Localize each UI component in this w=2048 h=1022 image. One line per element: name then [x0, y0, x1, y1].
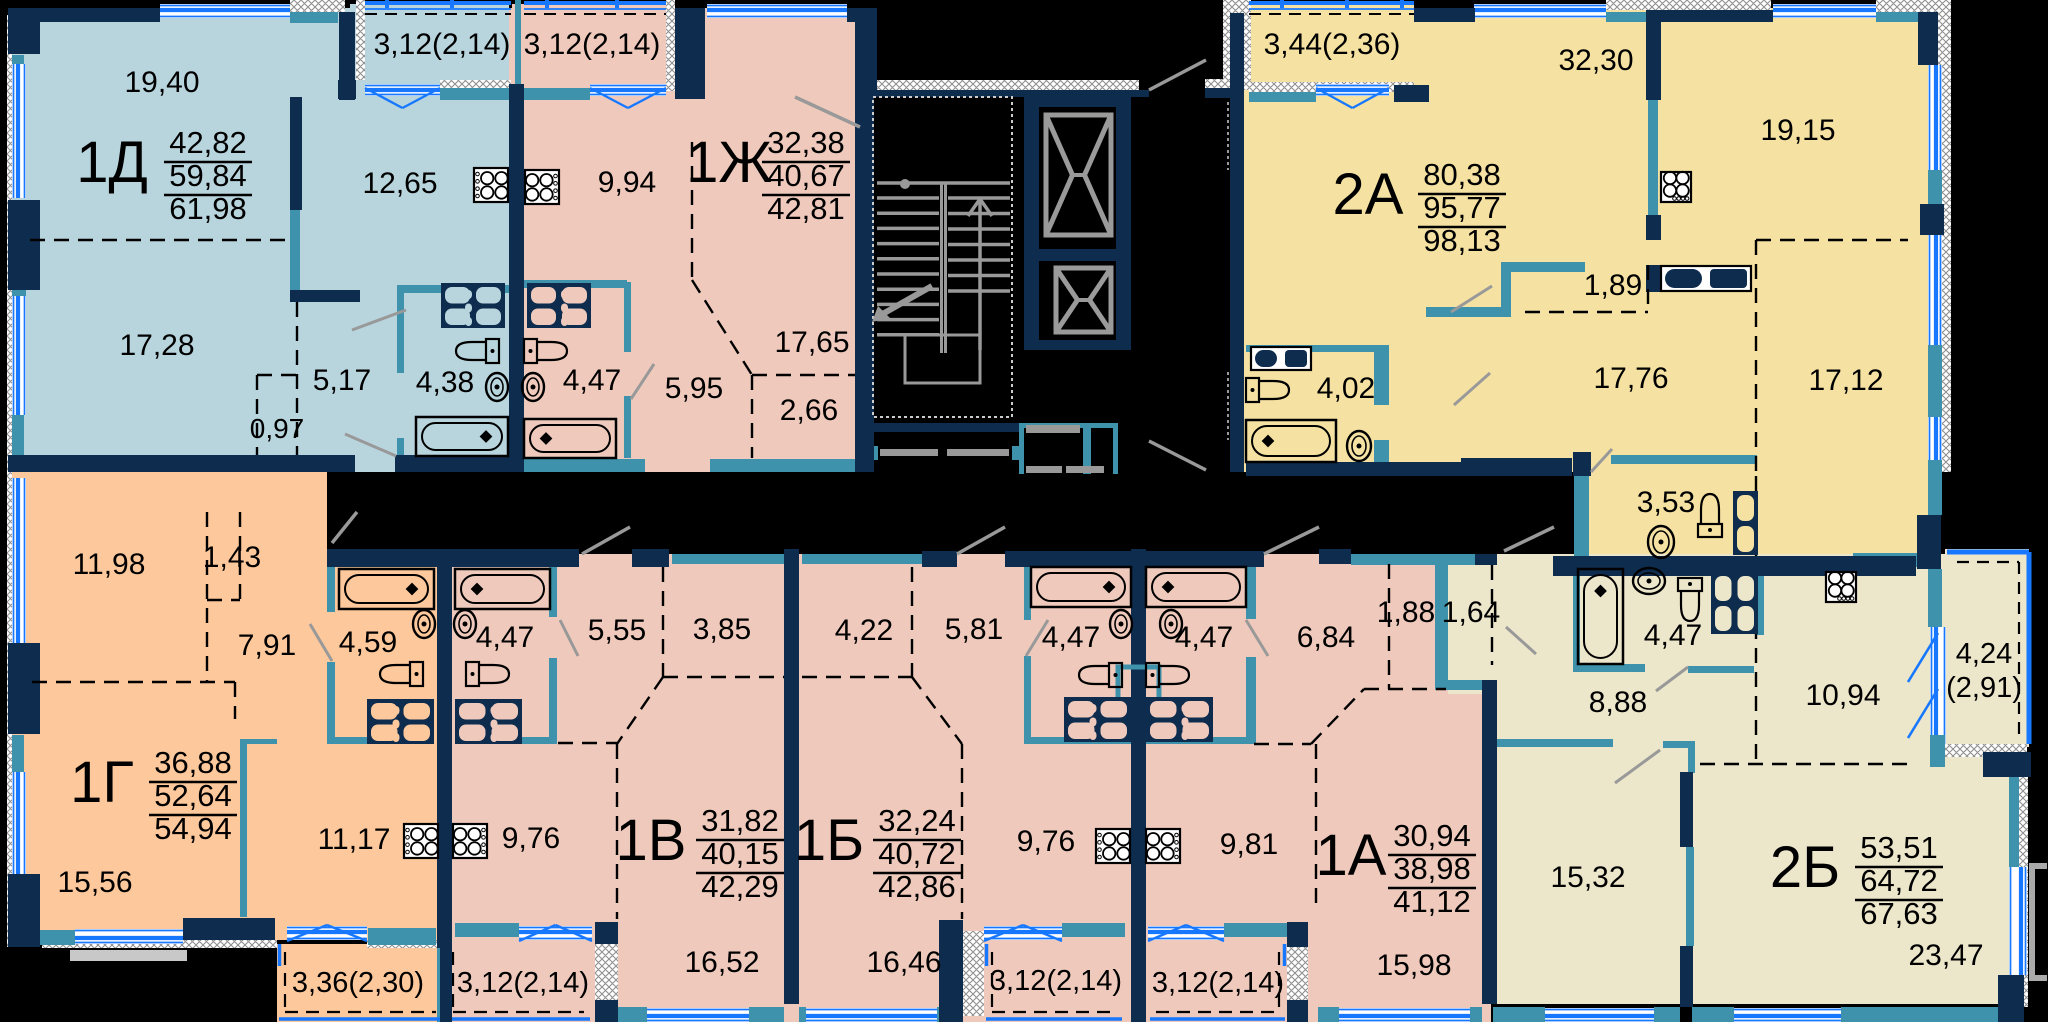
svg-text:3,53: 3,53 [1637, 486, 1695, 519]
svg-text:3,12(2,14): 3,12(2,14) [374, 28, 511, 61]
svg-text:1Ж: 1Ж [686, 130, 772, 195]
svg-text:12,65: 12,65 [362, 167, 437, 200]
svg-text:4,47: 4,47 [1175, 621, 1233, 654]
svg-text:2Б: 2Б [1770, 835, 1840, 900]
svg-text:11,17: 11,17 [318, 823, 391, 856]
svg-text:(2,91): (2,91) [1946, 672, 2022, 704]
svg-text:6,84: 6,84 [1297, 621, 1355, 654]
svg-text:2,66: 2,66 [780, 394, 838, 427]
svg-text:17,76: 17,76 [1593, 362, 1668, 395]
svg-text:8,88: 8,88 [1589, 686, 1647, 719]
svg-text:80,38: 80,38 [1423, 157, 1501, 192]
svg-text:15,56: 15,56 [57, 866, 132, 899]
svg-text:11,98: 11,98 [73, 548, 146, 581]
svg-text:1А: 1А [1316, 823, 1387, 888]
svg-text:19,40: 19,40 [124, 66, 199, 99]
svg-text:1,88: 1,88 [1377, 596, 1435, 629]
svg-text:4,02: 4,02 [1317, 372, 1375, 405]
svg-text:30,94: 30,94 [1393, 818, 1471, 853]
svg-text:15,32: 15,32 [1550, 861, 1625, 894]
svg-text:23,47: 23,47 [1908, 939, 1983, 972]
svg-text:4,24: 4,24 [1956, 638, 2012, 670]
svg-text:3,85: 3,85 [693, 613, 751, 646]
svg-text:4,47: 4,47 [1644, 619, 1702, 652]
svg-text:9,76: 9,76 [1017, 825, 1075, 858]
svg-text:17,28: 17,28 [119, 329, 194, 362]
svg-text:31,82: 31,82 [701, 803, 779, 838]
svg-text:9,81: 9,81 [1220, 828, 1278, 861]
svg-text:16,52: 16,52 [684, 946, 759, 979]
svg-text:7,91: 7,91 [238, 629, 296, 662]
svg-text:0,97: 0,97 [250, 413, 305, 444]
svg-text:9,94: 9,94 [598, 166, 656, 199]
svg-text:5,95: 5,95 [665, 372, 723, 405]
svg-text:36,88: 36,88 [154, 745, 232, 780]
svg-text:1Д: 1Д [76, 130, 148, 195]
svg-text:1,64: 1,64 [1442, 596, 1500, 629]
svg-text:3,12(2,14): 3,12(2,14) [457, 967, 589, 999]
svg-text:17,12: 17,12 [1808, 364, 1883, 397]
svg-text:3,12(2,14): 3,12(2,14) [524, 28, 661, 61]
svg-text:42,82: 42,82 [169, 125, 247, 160]
svg-text:16,46: 16,46 [866, 946, 941, 979]
svg-text:3,12(2,14): 3,12(2,14) [1152, 967, 1284, 999]
svg-text:4,47: 4,47 [563, 364, 621, 397]
svg-text:9,76: 9,76 [502, 822, 560, 855]
svg-text:4,47: 4,47 [476, 621, 534, 654]
svg-text:1,43: 1,43 [203, 541, 261, 574]
svg-text:32,38: 32,38 [767, 125, 845, 160]
svg-text:3,36(2,30): 3,36(2,30) [292, 967, 424, 999]
svg-text:5,17: 5,17 [313, 364, 371, 397]
svg-text:10,94: 10,94 [1805, 679, 1880, 712]
svg-text:5,81: 5,81 [945, 613, 1003, 646]
svg-text:19,15: 19,15 [1760, 114, 1835, 147]
svg-text:4,38: 4,38 [416, 366, 474, 399]
svg-text:15,98: 15,98 [1376, 949, 1451, 982]
svg-text:1Г: 1Г [70, 750, 134, 815]
svg-text:1В: 1В [616, 808, 687, 873]
svg-text:4,47: 4,47 [1042, 621, 1100, 654]
svg-text:17,65: 17,65 [774, 326, 849, 359]
svg-text:32,24: 32,24 [878, 803, 956, 838]
svg-text:4,59: 4,59 [339, 626, 397, 659]
svg-text:32,30: 32,30 [1558, 44, 1633, 77]
svg-text:2А: 2А [1333, 162, 1404, 227]
svg-text:3,12(2,14): 3,12(2,14) [990, 965, 1122, 997]
svg-text:1,89: 1,89 [1584, 269, 1642, 302]
svg-text:1Б: 1Б [794, 808, 864, 873]
svg-text:4,22: 4,22 [835, 614, 893, 647]
svg-text:5,55: 5,55 [588, 614, 646, 647]
svg-text:3,44(2,36): 3,44(2,36) [1264, 28, 1401, 61]
svg-text:53,51: 53,51 [1860, 830, 1938, 865]
